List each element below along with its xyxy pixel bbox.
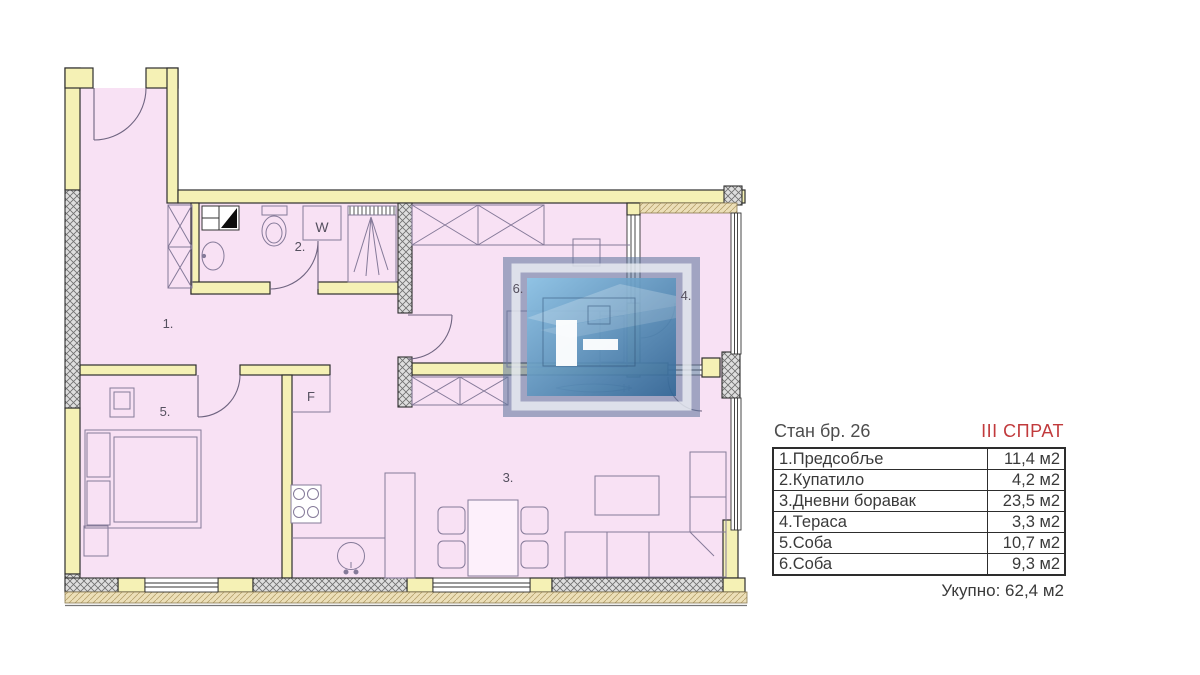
- room-label-terrace: 4.: [681, 288, 692, 303]
- table-row: 3.Дневни боравак 23,5 м2: [774, 491, 1064, 512]
- facade-terrace-top: [640, 203, 737, 213]
- window-living: [433, 578, 530, 592]
- facade-bottom: [65, 592, 747, 603]
- room-area: 3,3 м2: [987, 512, 1064, 532]
- total-area: Укупно: 62,4 м2: [772, 581, 1066, 601]
- room-label-bedroom5: 5.: [160, 404, 171, 419]
- room-label-hall: 1.: [163, 316, 174, 331]
- room-area: 4,2 м2: [987, 470, 1064, 490]
- washer-label: W: [315, 219, 329, 235]
- fridge-label: F: [307, 389, 315, 404]
- table-row: 2.Купатило 4,2 м2: [774, 470, 1064, 491]
- room-label-bathroom: 2.: [295, 239, 306, 254]
- table-row: 1.Предсобље 11,4 м2: [774, 449, 1064, 470]
- wall-bottom-seg2: [218, 578, 253, 592]
- room-name: 4.Тераса: [774, 513, 987, 532]
- room-name: 2.Купатило: [774, 471, 987, 490]
- window-living-side: [731, 398, 741, 530]
- page: 1. 2. 3. 4. 5. 6. W F Стан бр. 26 III СП…: [0, 0, 1200, 675]
- apartment-title: Стан бр. 26: [774, 421, 870, 442]
- wall-pillar: [702, 358, 720, 377]
- hatch-column-upper: [398, 203, 412, 313]
- room-name: 5.Соба: [774, 534, 987, 553]
- wall-bath-bottom-b: [318, 282, 398, 294]
- logo-glyph-bar: [556, 320, 577, 366]
- room-area: 9,3 м2: [987, 554, 1064, 574]
- table-row: 5.Соба 10,7 м2: [774, 533, 1064, 554]
- wall-kitchen-top: [240, 365, 330, 375]
- wall-entry-right: [167, 68, 178, 203]
- wall-left-low: [65, 408, 80, 574]
- wall-bath-bottom-a: [191, 282, 270, 294]
- legend-header: Стан бр. 26 III СПРАТ: [772, 421, 1066, 442]
- hatch-column-lower: [398, 357, 412, 407]
- wall-room5-kitchen-divider: [282, 375, 292, 578]
- area-table: 1.Предсобље 11,4 м2 2.Купатило 4,2 м2 3.…: [772, 447, 1066, 576]
- room-area: 23,5 м2: [987, 491, 1064, 511]
- room-area: 10,7 м2: [987, 533, 1064, 553]
- stove: [291, 485, 321, 523]
- table-row: 4.Тераса 3,3 м2: [774, 512, 1064, 533]
- wall-bottom-seg3: [407, 578, 433, 592]
- room-name: 3.Дневни боравак: [774, 492, 987, 511]
- room-label-bedroom6: 6.: [513, 281, 524, 296]
- wall-room6-right-stub: [627, 203, 640, 215]
- wall-bottom-seg5: [723, 578, 745, 592]
- window-terrace-side: [731, 213, 741, 354]
- area-legend: Стан бр. 26 III СПРАТ 1.Предсобље 11,4 м…: [772, 421, 1066, 601]
- hatch-bottom-seg3: [552, 578, 723, 592]
- floor-label: III СПРАТ: [981, 421, 1064, 442]
- hatch-pillar: [722, 352, 740, 398]
- wall-hall-bottom: [80, 365, 196, 375]
- room-name: 6.Соба: [774, 555, 987, 574]
- hatch-bottom-seg1: [65, 578, 118, 592]
- wall-top-main: [178, 190, 745, 203]
- hatch-top-corner: [724, 186, 742, 205]
- wall-entry-top-left: [65, 68, 93, 88]
- logo-glyph-dash: [583, 339, 618, 350]
- wall-bottom-seg4: [530, 578, 552, 592]
- room-label-living: 3.: [503, 470, 514, 485]
- hatch-bottom-seg2: [253, 578, 407, 592]
- bathroom-vanity: [202, 206, 239, 230]
- logo-watermark: [503, 257, 700, 417]
- table-row: 6.Соба 9,3 м2: [774, 554, 1064, 574]
- wall-bottom-seg1: [118, 578, 145, 592]
- room-name: 1.Предсобље: [774, 450, 987, 469]
- room-area: 11,4 м2: [987, 449, 1064, 469]
- window-room5: [145, 578, 218, 592]
- hatch-left-mid: [65, 190, 80, 408]
